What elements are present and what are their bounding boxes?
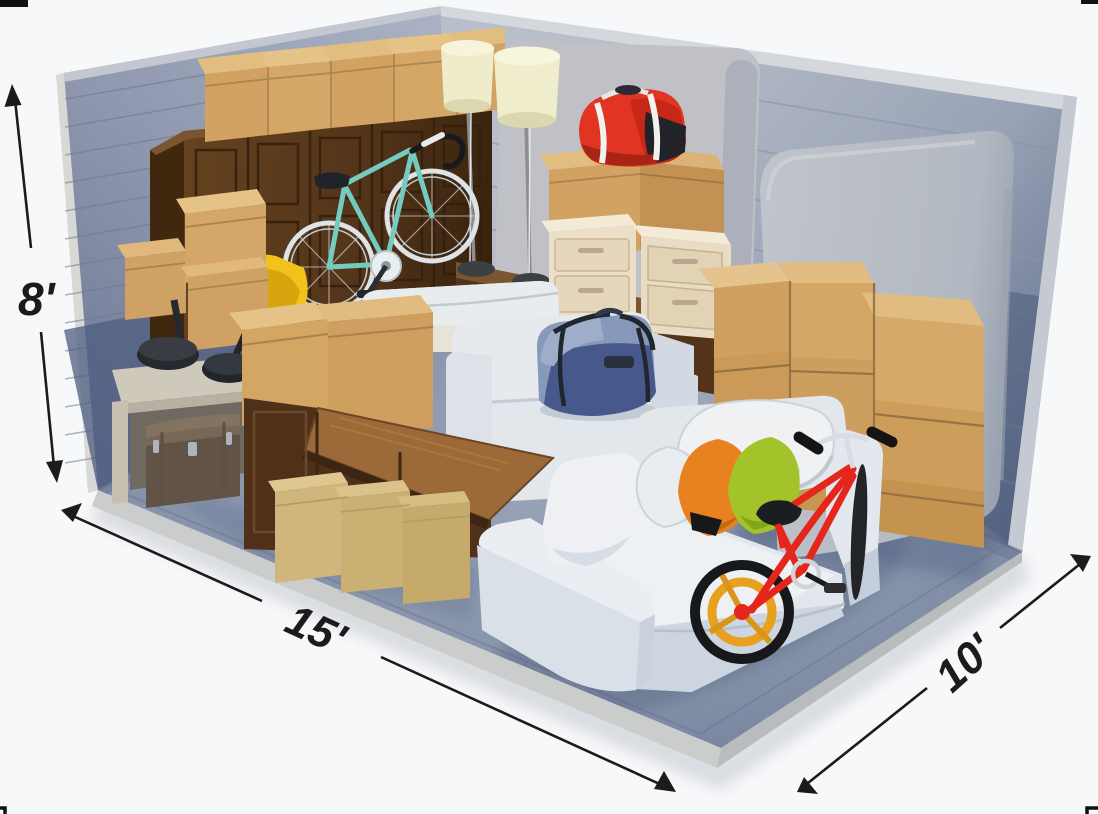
svg-text:8': 8' xyxy=(18,273,57,325)
